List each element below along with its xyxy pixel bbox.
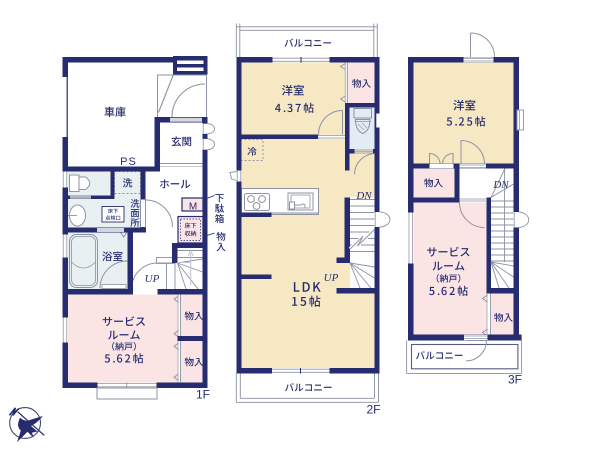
svg-text:3F: 3F [508,373,522,387]
svg-text:2F: 2F [366,403,380,417]
svg-text:PS: PS [120,156,137,168]
svg-text:1F: 1F [196,388,210,402]
svg-text:DN: DN [355,190,372,202]
svg-text:UP: UP [324,272,339,284]
svg-text:UP: UP [145,273,160,285]
svg-text:M: M [189,202,197,213]
svg-text:DN: DN [492,179,509,191]
